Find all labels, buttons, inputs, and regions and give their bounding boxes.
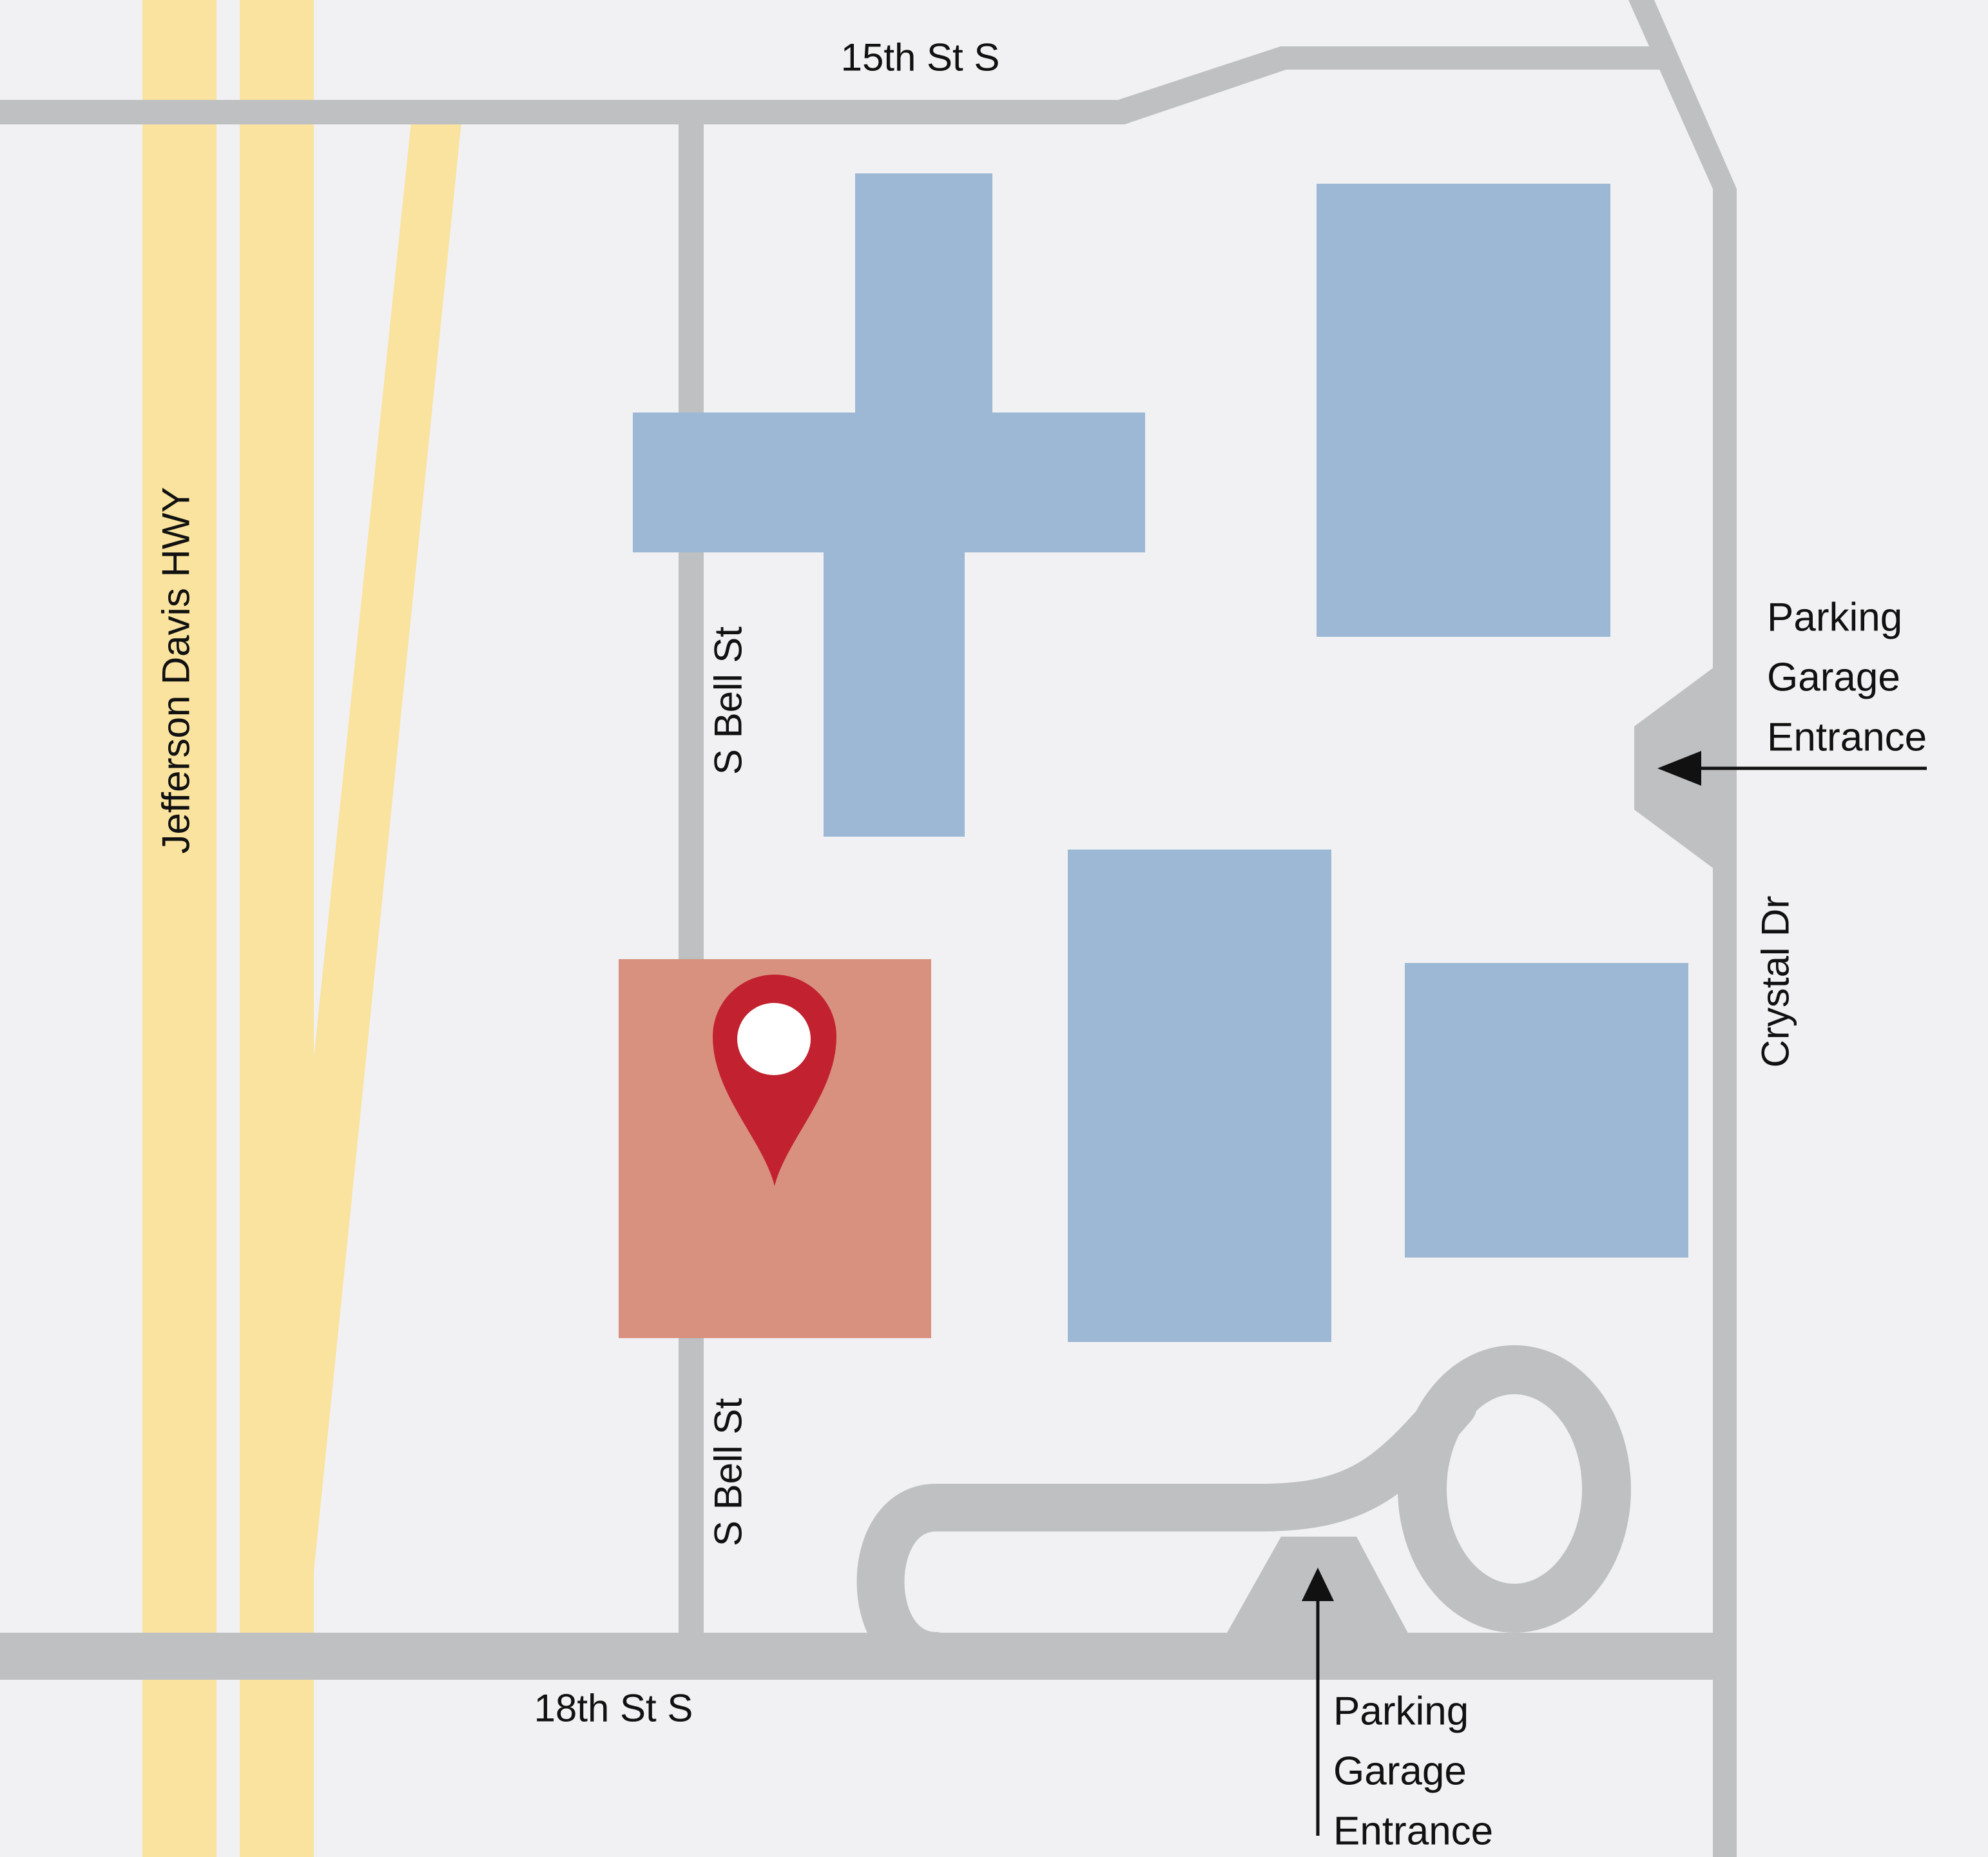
pin-center-dot (737, 1003, 811, 1075)
building-cross-bar (633, 413, 1145, 552)
building-cross-bottom-arm (824, 547, 965, 837)
road-18th-st-s (0, 1633, 1727, 1680)
parking-right-line-3: Entrance (1767, 715, 1927, 760)
label-s-bell-st-lower: S Bell St (707, 1398, 750, 1546)
hwy-lane-west (142, 0, 217, 1857)
label-s-bell-st-upper: S Bell St (707, 627, 750, 775)
hwy-lane-east (240, 0, 314, 1857)
jefferson-davis-hwy-lanes (142, 0, 463, 1857)
parking-bottom-line-2: Garage (1333, 1749, 1467, 1794)
label-jefferson-davis-hwy: Jefferson Davis HWY (155, 487, 198, 853)
parking-right-line-1: Parking (1767, 596, 1902, 640)
label-crystal-dr: Crystal Dr (1754, 896, 1797, 1068)
hwy-lane-ramp (314, 103, 463, 1571)
building-east (1405, 963, 1688, 1258)
building-center (1068, 850, 1331, 1342)
building-northeast (1317, 184, 1610, 637)
building-cross-top-arm (855, 173, 992, 418)
label-18th-st-s: 18th St S (534, 1687, 693, 1730)
road-s-bell-st (679, 100, 704, 1680)
parking-bottom-line-3: Entrance (1333, 1809, 1493, 1854)
locator-map: 15th St S 18th St S Jefferson Davis HWY … (0, 0, 1988, 1857)
road-crystal-dr (1628, 0, 1737, 1857)
label-15th-st-s: 15th St S (841, 36, 1000, 79)
loop-driveway-ring (1422, 1370, 1607, 1608)
parking-bottom-line-1: Parking (1333, 1689, 1469, 1734)
parking-right-line-2: Garage (1767, 656, 1900, 700)
